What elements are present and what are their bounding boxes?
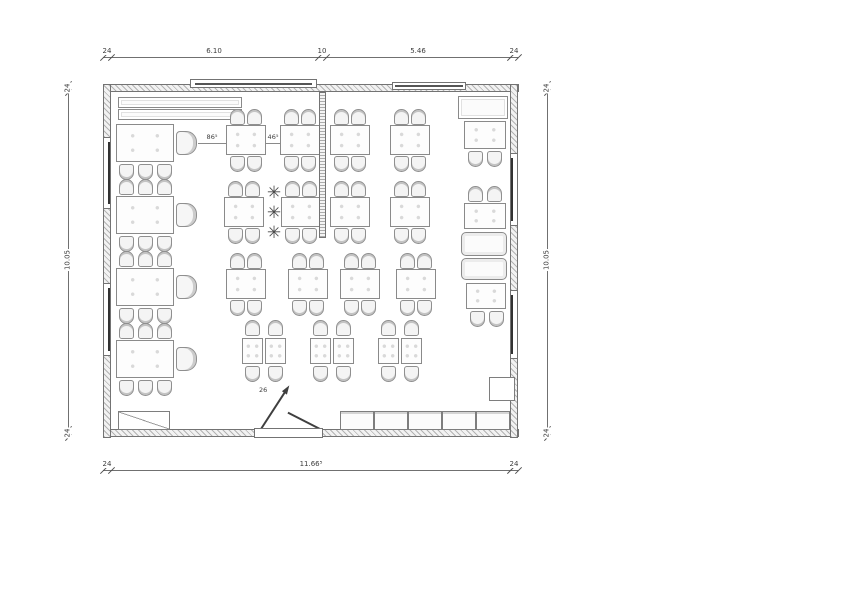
chair: [417, 300, 432, 316]
chair: [411, 181, 426, 197]
chair: [309, 300, 324, 316]
dining-table: [288, 269, 328, 299]
chair: [284, 156, 299, 172]
booth-bench: [461, 232, 507, 256]
dimension-label: 24: [65, 428, 72, 439]
window: [392, 82, 466, 90]
chair: [228, 181, 243, 197]
floor-plan-page: { "labels": { "gap_a": "86⁵", "gap_b": "…: [0, 0, 849, 600]
chair: [292, 253, 307, 269]
chair: [301, 156, 316, 172]
chair: [468, 151, 483, 167]
chair: [336, 320, 351, 336]
window: [103, 137, 111, 209]
chair: [411, 109, 426, 125]
window: [510, 290, 518, 359]
chair: [302, 181, 317, 197]
dining-table: [401, 338, 422, 364]
chair: [336, 366, 351, 382]
chair: [394, 156, 409, 172]
chair: [394, 181, 409, 197]
dining-table: [330, 125, 370, 155]
chair: [334, 109, 349, 125]
dimension-label: 24: [509, 48, 520, 55]
chair: [157, 179, 172, 195]
gap-dimension-line: [198, 143, 226, 144]
chair: [400, 253, 415, 269]
chair: [411, 156, 426, 172]
chair: [157, 323, 172, 339]
dimension-label: 24: [509, 461, 520, 468]
dimension-label: 24: [544, 428, 551, 439]
dining-table: [226, 269, 266, 299]
chair: [302, 228, 317, 244]
chair: [138, 164, 153, 180]
dining-table: [396, 269, 436, 299]
chair: [334, 181, 349, 197]
chair: [245, 320, 260, 336]
chair: [247, 253, 262, 269]
dimension-line: [103, 470, 518, 471]
dimension-label: 24: [544, 83, 551, 94]
armchair: [176, 131, 197, 155]
chair: [344, 300, 359, 316]
dining-table: [310, 338, 331, 364]
partition-wall: [319, 92, 326, 238]
chair: [301, 109, 316, 125]
plant-icon: ✳: [264, 183, 284, 203]
dimension-tick: [515, 54, 522, 61]
chair: [268, 366, 283, 382]
dimension-line: [103, 57, 518, 58]
chair: [351, 228, 366, 244]
chair: [292, 300, 307, 316]
chair: [119, 323, 134, 339]
bench: [458, 96, 508, 119]
corner-cabinet: [489, 377, 515, 401]
door-sill: [254, 428, 323, 438]
booth-bench: [461, 258, 507, 280]
dining-table: [226, 125, 266, 155]
chair: [361, 300, 376, 316]
dining-table: [390, 125, 430, 155]
dimension-label: 24: [102, 461, 113, 468]
plant-icon: ✳: [264, 203, 284, 223]
chair: [489, 311, 504, 327]
dimension-label: 10.05: [544, 249, 551, 271]
chair: [157, 380, 172, 396]
chair: [138, 380, 153, 396]
dimension-label: 24: [102, 48, 113, 55]
chair: [313, 366, 328, 382]
chair: [119, 164, 134, 180]
dining-table: [242, 338, 263, 364]
counter-unit: [476, 411, 510, 430]
chair: [138, 323, 153, 339]
dining-table: [265, 338, 286, 364]
chair: [268, 320, 283, 336]
dimension-label: 10: [317, 48, 328, 55]
chair: [230, 156, 245, 172]
dining-table: [340, 269, 380, 299]
chair: [285, 181, 300, 197]
chair: [230, 300, 245, 316]
chair: [417, 253, 432, 269]
dining-table: [330, 197, 370, 227]
chair: [394, 228, 409, 244]
chair: [245, 366, 260, 382]
chair: [381, 320, 396, 336]
chair: [247, 156, 262, 172]
chair: [157, 236, 172, 252]
chair: [138, 251, 153, 267]
chair: [404, 320, 419, 336]
chair: [487, 151, 502, 167]
counter-unit: [442, 411, 476, 430]
chair: [404, 366, 419, 382]
counter-unit: [374, 411, 408, 430]
gap-dimension-label: 46⁵: [268, 134, 279, 141]
chair: [313, 320, 328, 336]
bench: [118, 109, 242, 120]
chair: [334, 156, 349, 172]
chair: [351, 109, 366, 125]
chair: [284, 109, 299, 125]
counter-unit: [340, 411, 374, 430]
chair: [247, 300, 262, 316]
gap-dimension-label: 86⁵: [207, 134, 218, 141]
armchair: [176, 347, 197, 371]
dining-table: [224, 197, 264, 227]
dining-table: [116, 268, 174, 306]
chair: [344, 253, 359, 269]
chair: [394, 109, 409, 125]
chair: [470, 311, 485, 327]
dining-table: [116, 340, 174, 378]
dining-table: [390, 197, 430, 227]
chair: [351, 156, 366, 172]
dining-table: [116, 124, 174, 162]
floor-plan: ✳✳✳246.10105.46242411.66⁵242410.05242410…: [0, 0, 849, 600]
door-width-label: 26: [259, 387, 267, 394]
dining-table: [116, 196, 174, 234]
dimension-label: 11.66⁵: [299, 461, 324, 468]
dining-table: [464, 203, 506, 229]
chair: [247, 109, 262, 125]
chair: [157, 308, 172, 324]
chair: [138, 236, 153, 252]
dining-table: [464, 121, 506, 149]
chair: [157, 251, 172, 267]
dimension-tick: [515, 467, 522, 474]
armchair: [176, 203, 197, 227]
dining-table: [466, 283, 506, 309]
chair: [119, 380, 134, 396]
chair: [230, 109, 245, 125]
chair: [119, 179, 134, 195]
chair: [119, 251, 134, 267]
chair: [157, 164, 172, 180]
dimension-label: 24: [65, 83, 72, 94]
chair: [351, 181, 366, 197]
dimension-label: 6.10: [205, 48, 223, 55]
gap-dimension-line: [266, 143, 280, 144]
chair: [245, 228, 260, 244]
chair: [334, 228, 349, 244]
chair: [119, 308, 134, 324]
counter-unit: [408, 411, 442, 430]
window: [510, 153, 518, 226]
chair: [138, 179, 153, 195]
chair: [230, 253, 245, 269]
bench: [118, 97, 242, 108]
dimension-label: 5.46: [409, 48, 427, 55]
dimension-label: 10.05: [65, 249, 72, 271]
chair: [361, 253, 376, 269]
chair: [309, 253, 324, 269]
chair: [138, 308, 153, 324]
chair: [468, 186, 483, 202]
chair: [487, 186, 502, 202]
chair: [119, 236, 134, 252]
sideboard: [118, 411, 170, 430]
chair: [411, 228, 426, 244]
chair: [381, 366, 396, 382]
dining-table: [333, 338, 354, 364]
dining-table: [281, 197, 321, 227]
dining-table: [378, 338, 399, 364]
armchair: [176, 275, 197, 299]
window: [190, 79, 317, 88]
chair: [400, 300, 415, 316]
chair: [228, 228, 243, 244]
chair: [285, 228, 300, 244]
chair: [245, 181, 260, 197]
plant-icon: ✳: [264, 223, 284, 243]
door-leaf-icon: [260, 392, 286, 430]
window: [103, 283, 111, 356]
dining-table: [280, 125, 320, 155]
